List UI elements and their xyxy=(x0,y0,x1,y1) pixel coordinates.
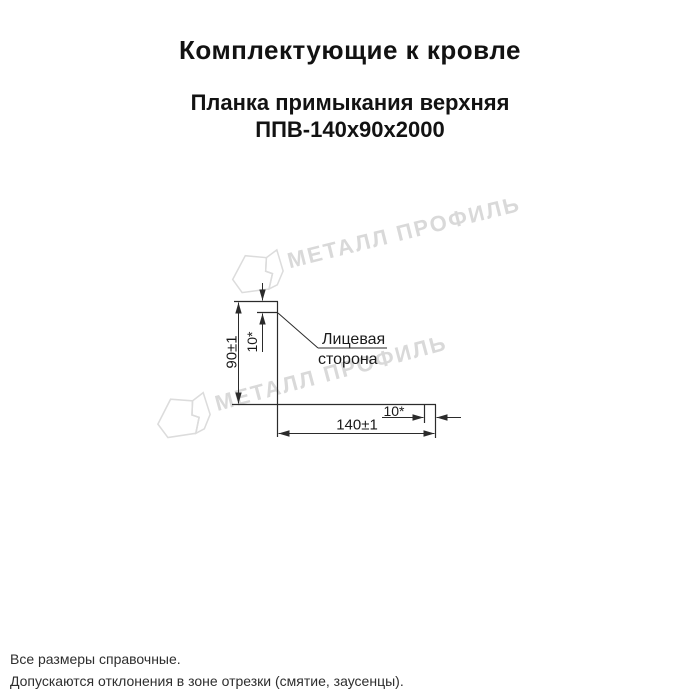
face-side-label-line2: сторона xyxy=(318,351,378,369)
footer-note-1: Все размеры справочные. xyxy=(10,648,404,670)
dim-label-height: 90±1 xyxy=(224,335,241,368)
face-side-label-line1: Лицевая xyxy=(322,331,385,349)
technical-drawing: МЕТАЛЛ ПРОФИЛЬ МЕТАЛЛ ПРОФИЛЬ xyxy=(0,0,700,700)
dim-label-end-hem: 10* xyxy=(383,403,404,419)
dim-label-width: 140±1 xyxy=(336,417,378,434)
footer-notes: Все размеры справочные. Допускаются откл… xyxy=(10,648,404,692)
dim-label-top-hem: 10* xyxy=(244,331,260,352)
footer-note-2: Допускаются отклонения в зоне отрезки (с… xyxy=(10,670,404,692)
profile-drawing-svg xyxy=(0,0,700,700)
